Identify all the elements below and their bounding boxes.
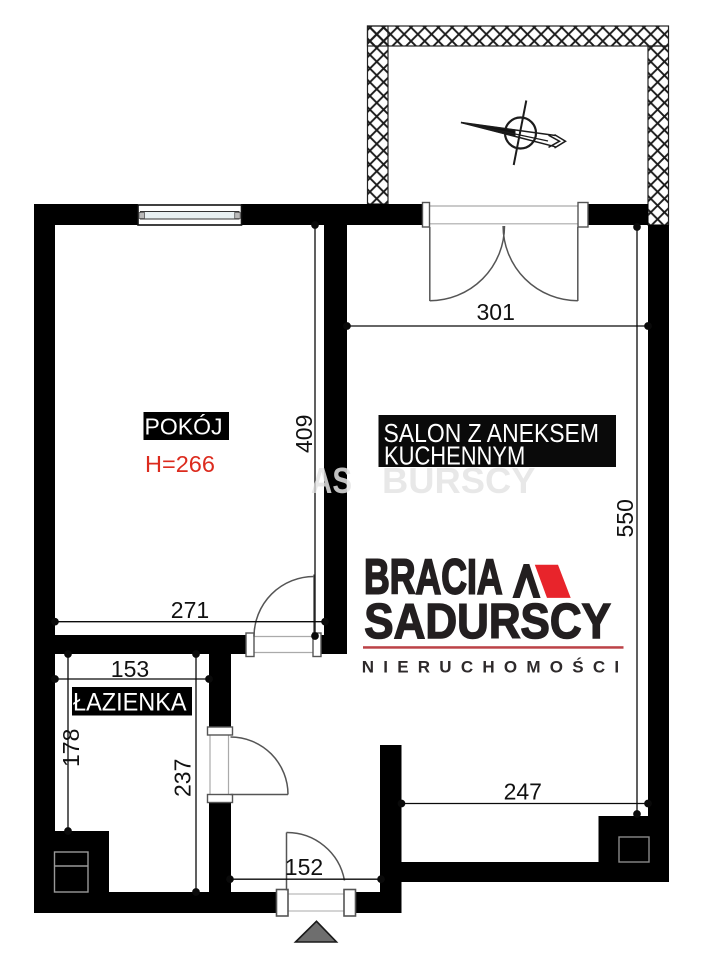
svg-text:247: 247 <box>504 778 542 804</box>
svg-text:POKÓJ: POKÓJ <box>145 414 223 440</box>
svg-text:SADURSCY: SADURSCY <box>364 594 611 649</box>
svg-text:153: 153 <box>111 656 149 682</box>
svg-text:178: 178 <box>58 729 84 767</box>
svg-text:550: 550 <box>612 499 638 537</box>
svg-text:237: 237 <box>170 759 196 797</box>
svg-text:H=266: H=266 <box>145 451 215 477</box>
svg-text:271: 271 <box>171 597 209 623</box>
svg-text:409: 409 <box>291 415 317 453</box>
svg-text:301: 301 <box>477 299 515 325</box>
svg-text:152: 152 <box>285 854 323 880</box>
svg-text:ŁAZIENKA: ŁAZIENKA <box>73 689 187 717</box>
svg-text:NIERUCHOMOŚCI: NIERUCHOMOŚCI <box>362 657 629 676</box>
